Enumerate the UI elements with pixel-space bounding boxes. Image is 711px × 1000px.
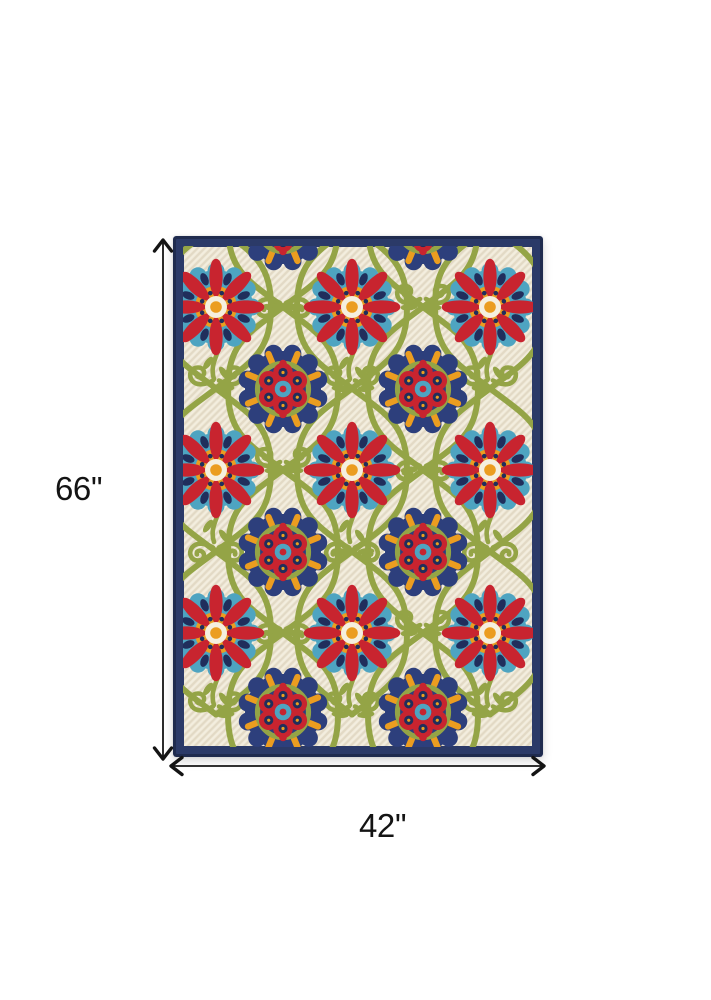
navy-medallion-motif [379, 345, 468, 434]
rug-image [173, 236, 543, 757]
navy-medallion-motif [239, 508, 328, 597]
navy-medallion-motif [379, 508, 468, 597]
arrow-down-icon [155, 748, 172, 759]
arrow-right-icon [533, 758, 544, 775]
navy-medallion-motif [239, 668, 328, 757]
navy-medallion-motif [239, 345, 328, 434]
arrow-up-icon [155, 240, 172, 251]
arrow-left-icon [171, 758, 182, 775]
height-label: 66'' [55, 472, 102, 505]
navy-medallion-motif [379, 668, 468, 757]
product-dimension-image: 66'' 42'' [0, 0, 711, 1000]
width-label: 42'' [359, 809, 406, 842]
